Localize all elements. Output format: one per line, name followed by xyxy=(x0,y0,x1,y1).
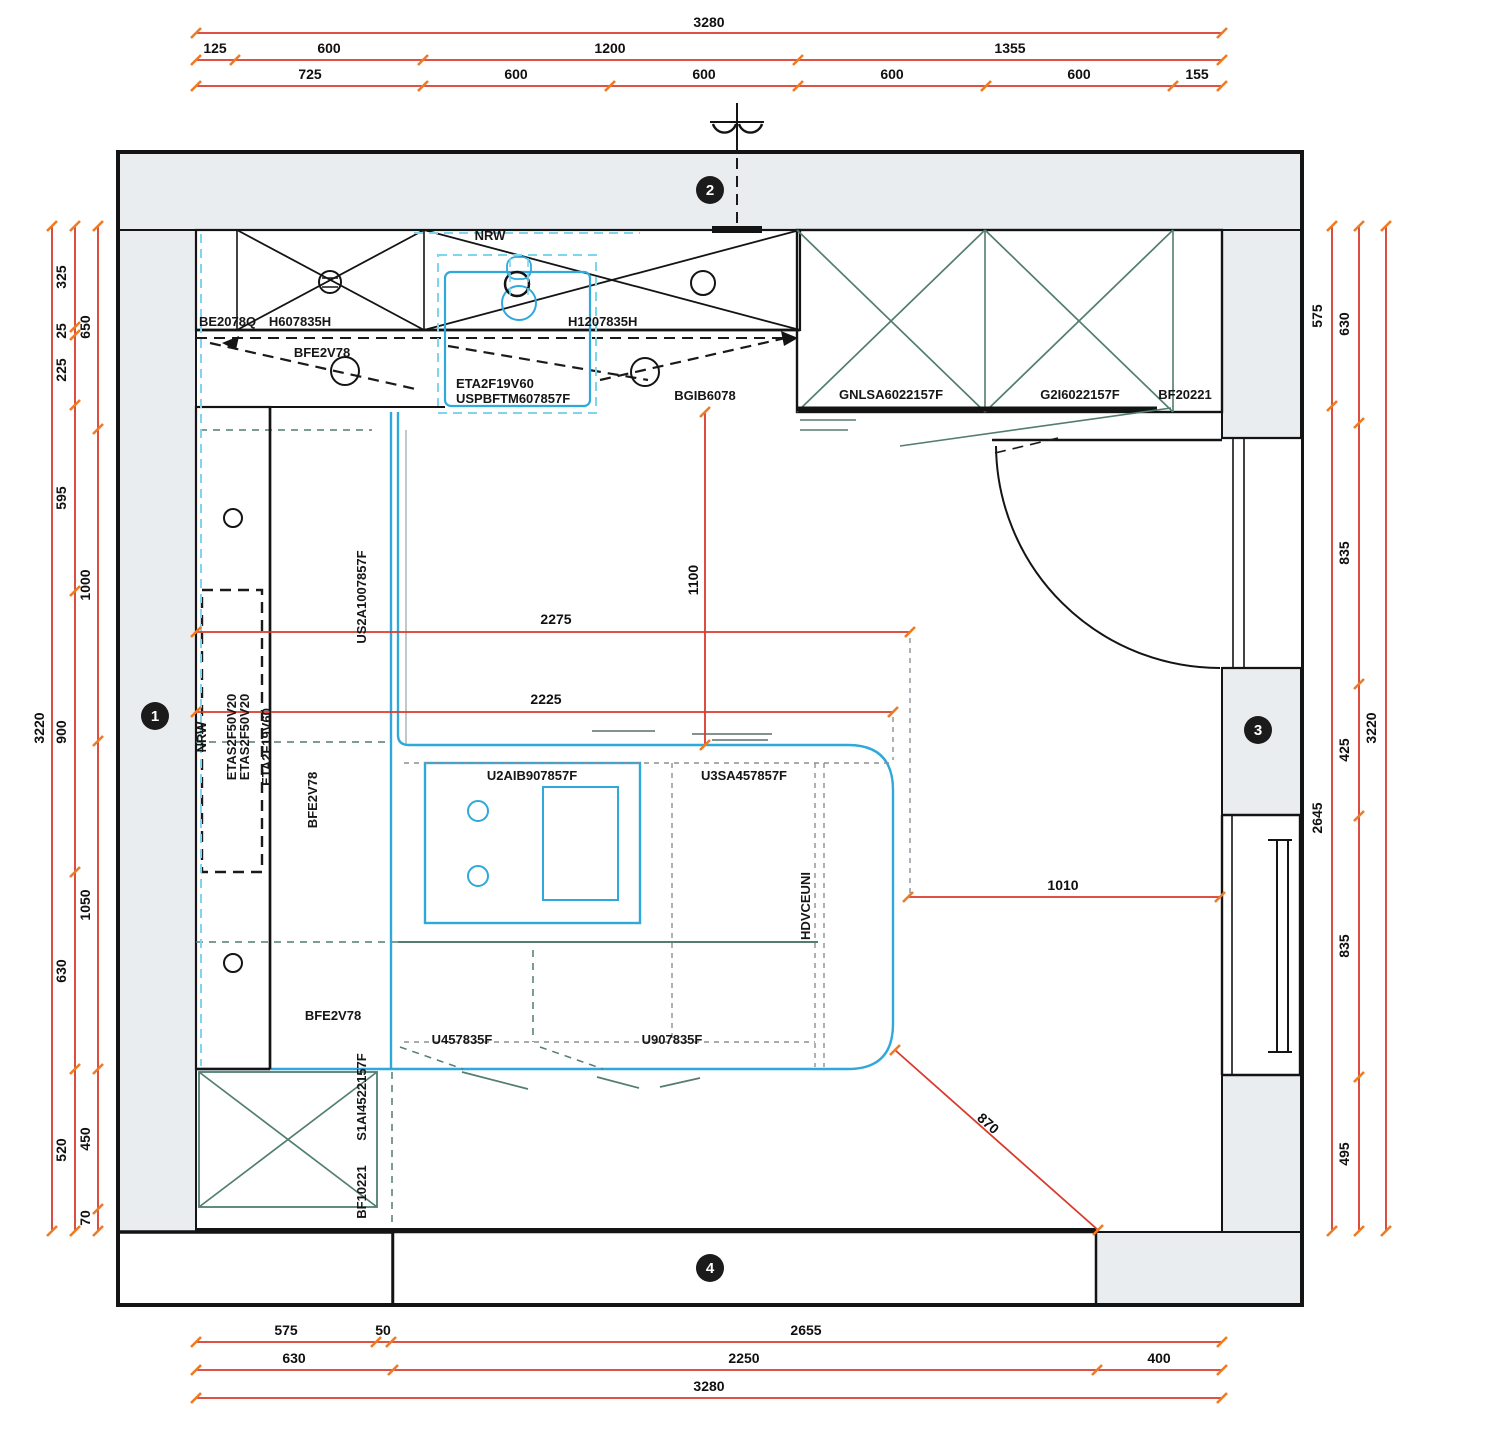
dim-right-c2-1: 835 xyxy=(1336,541,1352,565)
dim-diagonal: 870 xyxy=(974,1110,1002,1138)
dim-run-lower: 2225 xyxy=(530,691,561,707)
dim-bot-r2-0: 630 xyxy=(282,1350,306,1366)
top-dimension-labels: 3280 125 600 1200 1355 725 600 600 600 6… xyxy=(203,14,1209,82)
interior-dimension-labels: 1100 2275 2225 1010 870 xyxy=(530,565,1078,1138)
dim-bot-r1-0: 575 xyxy=(274,1322,298,1338)
dim-left-c3-4: 70 xyxy=(77,1210,93,1226)
wall-right-upper xyxy=(1222,230,1302,438)
dim-left-c2-5: 630 xyxy=(53,959,69,983)
dim-right-c2-4: 495 xyxy=(1336,1142,1352,1166)
label-eta2f19v60-left: ETA2F19V60 xyxy=(259,708,274,786)
dim-left-c2-3: 595 xyxy=(53,486,69,510)
bottom-left-niche xyxy=(118,1232,393,1305)
dim-island-wall: 1010 xyxy=(1047,877,1078,893)
label-h607835h: H607835H xyxy=(269,314,331,329)
cooktop-burner-2 xyxy=(468,866,488,886)
dim-right-c1-0: 575 xyxy=(1309,304,1325,328)
label-eta2f19v60-top: ETA2F19V60 xyxy=(456,376,534,391)
label-bf20221: BF20221 xyxy=(1158,387,1211,402)
cabinet-symbol-circle-1 xyxy=(319,271,341,293)
island-top-marks xyxy=(592,731,772,740)
wall-left xyxy=(118,230,196,1232)
cooktop-inner-box xyxy=(543,787,618,900)
tall-cabinet-box xyxy=(797,230,1222,412)
dim-top-r2-3: 1355 xyxy=(994,40,1025,56)
dim-right-c2-3: 835 xyxy=(1336,934,1352,958)
dim-top-r3-5: 155 xyxy=(1185,66,1209,82)
dim-right-total: 3220 xyxy=(1363,712,1379,743)
island-dashed-marks xyxy=(392,950,603,1226)
door-right xyxy=(992,438,1302,668)
swing-arrow-right xyxy=(781,331,798,346)
dim-top-total: 3280 xyxy=(693,14,724,30)
badge-4-number: 4 xyxy=(706,1260,715,1277)
bottom-cabinet-x xyxy=(199,1072,377,1207)
left-dimension-labels: 3220 325 25 225 595 900 630 520 650 1000… xyxy=(31,265,93,1226)
wall-badges: 1 2 3 4 xyxy=(141,176,1272,1282)
label-bfe2v78-mid: BFE2V78 xyxy=(305,772,320,828)
label-be2078q: BE2078Q xyxy=(199,314,256,329)
dim-left-c3-2: 1050 xyxy=(77,889,93,920)
label-s1ai: S1AI4522157F xyxy=(354,1053,369,1141)
label-bfe2v78-bottom: BFE2V78 xyxy=(305,1008,361,1023)
dim-right-c2-0: 630 xyxy=(1336,312,1352,336)
dim-top-r2-0: 125 xyxy=(203,40,227,56)
label-bfe2v78-top: BFE2V78 xyxy=(294,345,350,360)
wall-bottom-right xyxy=(1096,1232,1302,1305)
dim-run-upper: 2275 xyxy=(540,611,571,627)
dim-left-total: 3220 xyxy=(31,712,47,743)
dim-left-c3-3: 450 xyxy=(77,1127,93,1151)
dim-hood-island: 1100 xyxy=(685,565,701,596)
label-u2aib: U2AIB907857F xyxy=(487,768,577,783)
label-u457835f: U457835F xyxy=(432,1032,493,1047)
plan-drawing: 3280 125 600 1200 1355 725 600 600 600 6… xyxy=(0,0,1500,1453)
dim-bot-r1-1: 50 xyxy=(375,1322,391,1338)
dim-top-r2-1: 600 xyxy=(317,40,341,56)
bottom-left-cabinet xyxy=(196,407,377,1207)
dim-right-c2-2: 425 xyxy=(1336,738,1352,762)
label-nrw-left: NRW xyxy=(194,721,209,753)
dim-left-c2-6: 520 xyxy=(53,1138,69,1162)
bottom-opening xyxy=(393,1232,1096,1305)
left-knob-1 xyxy=(224,509,242,527)
dim-left-c2-1: 25 xyxy=(53,323,69,339)
tall-cabinets-right xyxy=(797,230,1222,446)
label-hdvceuni: HDVCEUNI xyxy=(798,872,813,940)
kitchen-floor-plan: 3280 125 600 1200 1355 725 600 600 600 6… xyxy=(0,0,1500,1453)
label-nrw-top: NRW xyxy=(475,228,507,243)
label-g2i: G2I6022157F xyxy=(1040,387,1120,402)
dim-top-r3-4: 600 xyxy=(1067,66,1091,82)
dim-top-r2-2: 1200 xyxy=(594,40,625,56)
label-etas2f50v20-2: ETAS2F50V20 xyxy=(237,694,252,780)
dim-top-r3-2: 600 xyxy=(692,66,716,82)
island-door-swing-marks xyxy=(462,1072,700,1089)
dim-left-c3-0: 650 xyxy=(77,315,93,339)
door-opening xyxy=(1223,438,1301,668)
dim-bot-r1-2: 2655 xyxy=(790,1322,821,1338)
label-uspbftm: USPBFTM607857F xyxy=(456,391,570,406)
label-bf10221: BF10221 xyxy=(354,1165,369,1218)
left-knob-2 xyxy=(224,954,242,972)
island-outline xyxy=(196,412,893,1069)
right-dimension-labels: 575 2645 630 835 425 835 495 3220 xyxy=(1309,304,1379,1166)
dim-bot-total: 3280 xyxy=(693,1378,724,1394)
island-unit-dashes xyxy=(404,763,893,1067)
dim-bot-r2-2: 400 xyxy=(1147,1350,1171,1366)
wall-right-lower xyxy=(1222,1075,1302,1232)
label-u907835f: U907835F xyxy=(642,1032,703,1047)
label-bgib6078: BGIB6078 xyxy=(674,388,735,403)
label-u3sa: U3SA457857F xyxy=(701,768,787,783)
badge-2-number: 2 xyxy=(706,182,714,199)
label-gnlsa: GNLSA6022157F xyxy=(839,387,943,402)
label-us2a: US2A1007857F xyxy=(354,550,369,643)
dimension-extension-dashes xyxy=(893,638,910,893)
label-h1207835h: H1207835H xyxy=(568,314,637,329)
dim-top-r3-0: 725 xyxy=(298,66,322,82)
badge-3-number: 3 xyxy=(1254,722,1262,739)
dim-left-c2-0: 325 xyxy=(53,265,69,289)
cabinet-symbol-circle-3 xyxy=(691,271,715,295)
left-teal-dashes xyxy=(196,430,398,942)
dim-top-r3-3: 600 xyxy=(880,66,904,82)
window-right xyxy=(1222,815,1300,1075)
dim-right-c1-1: 2645 xyxy=(1309,802,1325,833)
dim-bot-r2-1: 2250 xyxy=(728,1350,759,1366)
dim-left-c2-4: 900 xyxy=(53,720,69,744)
cooktop-burner-1 xyxy=(468,801,488,821)
door-swing-arc xyxy=(996,446,1220,668)
island-counter xyxy=(196,412,893,1226)
dim-top-r3-1: 600 xyxy=(504,66,528,82)
dim-left-c2-2: 225 xyxy=(53,358,69,382)
bottom-dimension-labels: 575 50 2655 630 2250 400 3280 xyxy=(274,1322,1171,1394)
dim-left-c3-1: 1000 xyxy=(77,569,93,600)
badge-1-number: 1 xyxy=(151,708,159,725)
